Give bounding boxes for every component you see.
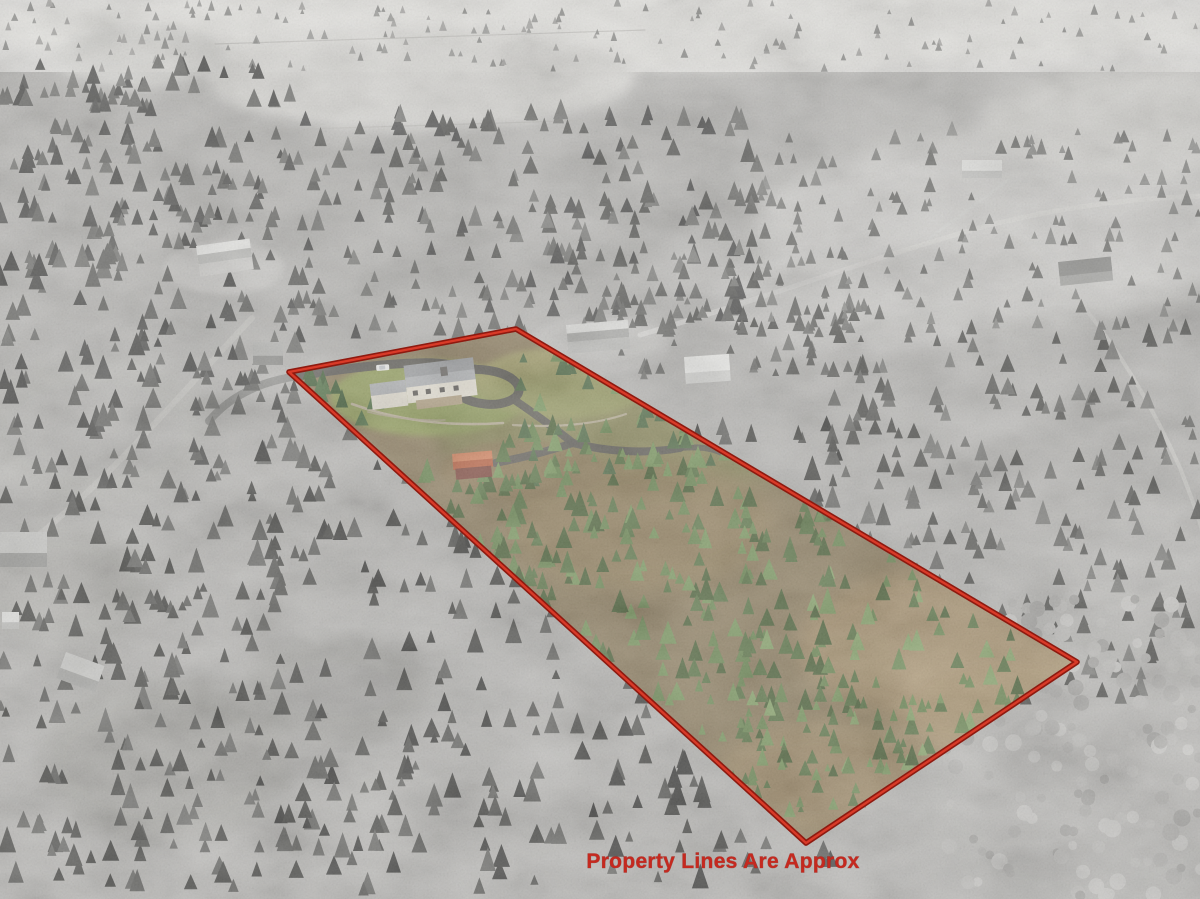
- caption-property-lines: Property Lines Are Approx: [586, 850, 859, 873]
- photo-canvas: Property Lines Are Approx: [0, 0, 1200, 899]
- aerial-property-photo: Property Lines Are Approx: [0, 0, 1200, 899]
- film-grain: [0, 0, 1200, 899]
